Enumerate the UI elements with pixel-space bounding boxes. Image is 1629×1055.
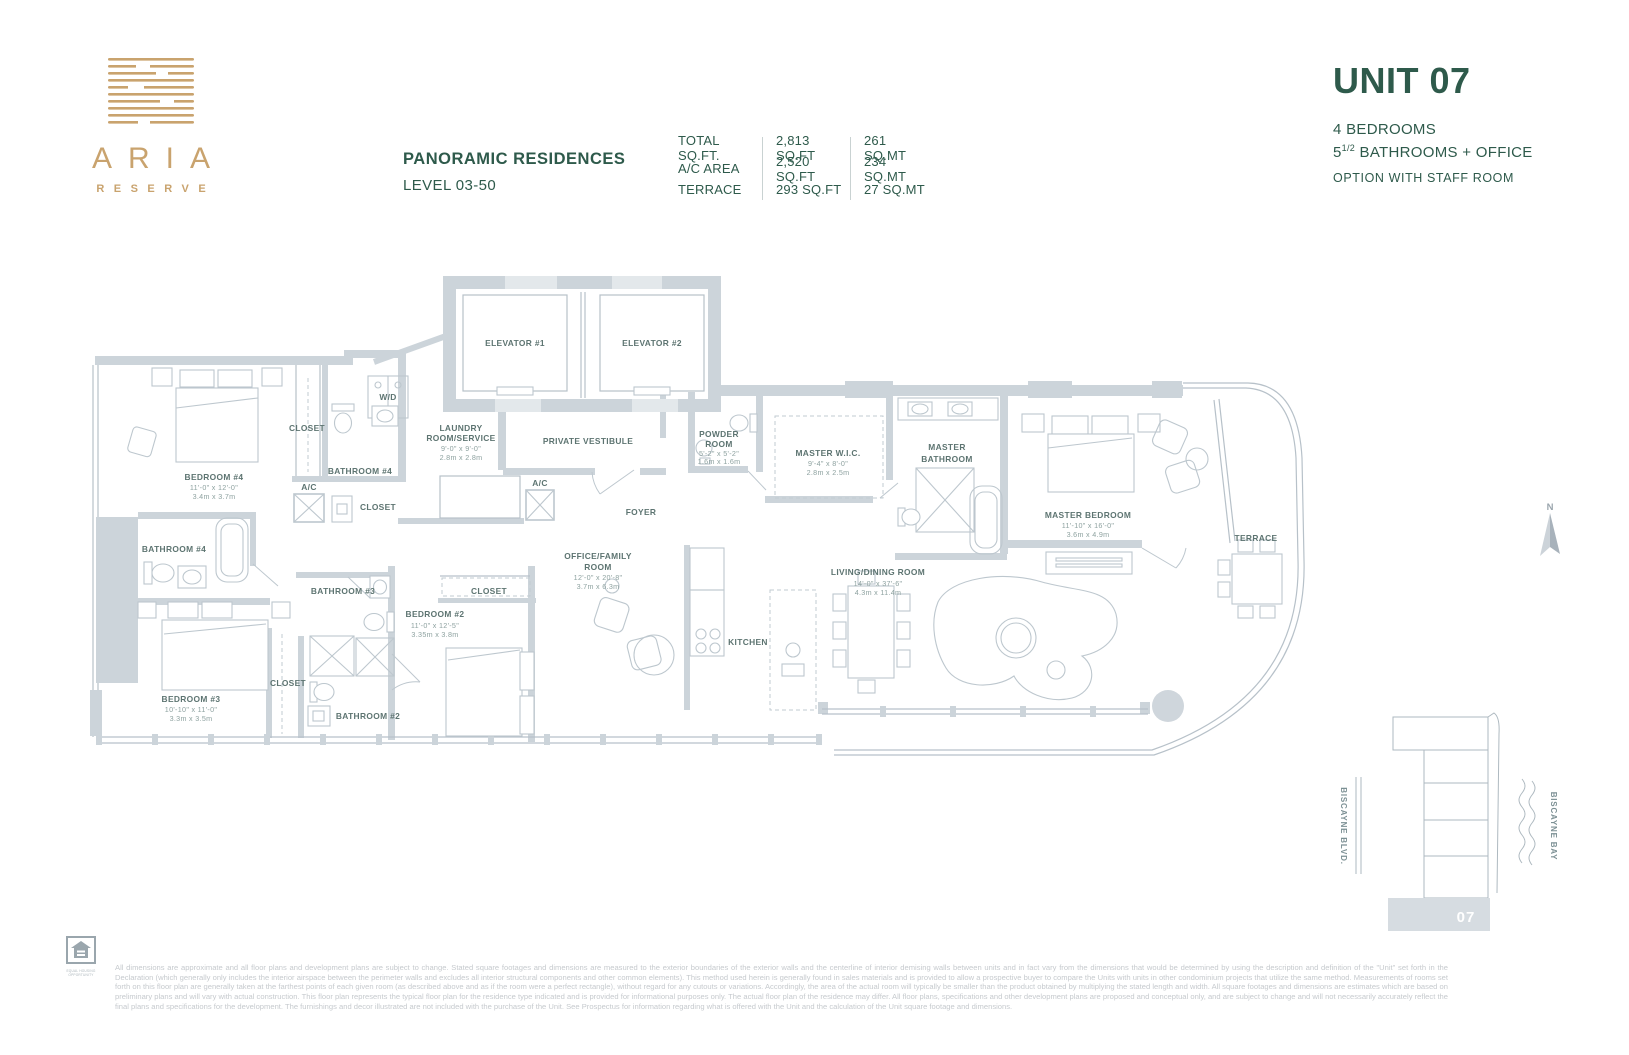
svg-text:BATHROOM: BATHROOM	[921, 454, 973, 464]
room-label-vestibule: PRIVATE VESTIBULE	[543, 436, 633, 446]
svg-text:BEDROOM #2: BEDROOM #2	[406, 609, 465, 619]
svg-text:ROOM: ROOM	[584, 562, 611, 572]
room-label-bathroom4: BATHROOM #4	[142, 544, 206, 554]
equal-housing-icon	[66, 936, 96, 964]
svg-text:11'-0" x 12'-5": 11'-0" x 12'-5"	[411, 621, 459, 630]
svg-text:12'-0" x 20'-8": 12'-0" x 20'-8"	[574, 573, 623, 582]
office-chairs-icon	[593, 579, 674, 675]
elevator-doors	[497, 387, 670, 395]
kitchen-counter-icon	[690, 548, 804, 676]
shower-icon	[310, 636, 394, 676]
toilet-icon	[364, 612, 394, 632]
svg-text:LIVING/DINING ROOM: LIVING/DINING ROOM	[831, 567, 925, 577]
svg-text:4.3m x 11.4m: 4.3m x 11.4m	[855, 588, 902, 597]
bed-icon	[152, 368, 282, 462]
bathtub-icon	[216, 518, 248, 582]
toilet-icon	[898, 508, 920, 526]
room-label-master-bedroom: MASTER BEDROOM 11'-10" x 16'-0" 3.6m x 4…	[1045, 510, 1131, 539]
svg-text:MASTER: MASTER	[928, 442, 965, 452]
sink-icon	[178, 566, 206, 588]
room-label-elevator2: ELEVATOR #2	[622, 338, 682, 348]
bed-icon	[138, 602, 290, 690]
svg-text:3.4m x 3.7m: 3.4m x 3.7m	[193, 492, 236, 501]
ac-closet-icon	[294, 490, 554, 522]
room-label-ac: A/C	[532, 478, 547, 488]
svg-text:3.3m x 3.5m: 3.3m x 3.5m	[170, 714, 213, 723]
svg-text:10'-10" x 11'-0": 10'-10" x 11'-0"	[165, 705, 218, 714]
room-label-bedroom3: BEDROOM #3 10'-10" x 11'-0" 3.3m x 3.5m	[162, 694, 221, 723]
svg-text:MASTER BEDROOM: MASTER BEDROOM	[1045, 510, 1131, 520]
room-label-bathroom3: BATHROOM #3	[311, 586, 375, 596]
svg-text:2.8m x 2.8m: 2.8m x 2.8m	[440, 453, 483, 462]
compass-needle-icon	[1540, 513, 1550, 556]
room-label-living-dining: LIVING/DINING ROOM 14'-0" x 37'-6" 4.3m …	[831, 567, 925, 597]
room-label-bedroom4: BEDROOM #4 11'-0" x 12'-0" 3.4m x 3.7m	[185, 472, 244, 501]
svg-text:POWDER: POWDER	[699, 429, 739, 439]
floor-plan: ELEVATOR #1 ELEVATOR #2 W/D CLOSET BATHR…	[0, 0, 1629, 1055]
shower-icon	[916, 468, 974, 532]
toilet-icon	[144, 562, 174, 584]
compass-needle-icon	[1550, 513, 1560, 554]
svg-text:9'-0" x 9'-0": 9'-0" x 9'-0"	[441, 444, 481, 453]
site-map: 07 BISCAYNE BLVD. BISCAYNE BAY	[1339, 713, 1558, 931]
floorplan-sheet: { "brand": {"name": "ARIA", "tagline": "…	[0, 0, 1629, 1055]
toilet-icon	[332, 404, 354, 433]
svg-text:LAUNDRY: LAUNDRY	[439, 423, 482, 433]
terrace-table-icon	[1218, 540, 1282, 618]
svg-text:OFFICE/FAMILY: OFFICE/FAMILY	[564, 551, 632, 561]
equal-housing-caption: EQUAL HOUSING OPPORTUNITY	[63, 970, 99, 978]
north-compass: N	[1540, 502, 1560, 556]
svg-text:3.35m x 3.8m: 3.35m x 3.8m	[411, 630, 458, 639]
room-label-powder: POWDER ROOM 5'-2" x 5'-2" 1.6m x 1.6m	[698, 429, 741, 466]
room-label-master-bathroom: MASTER BATHROOM	[921, 442, 973, 464]
svg-text:ROOM: ROOM	[705, 439, 732, 449]
svg-text:2.8m x 2.5m: 2.8m x 2.5m	[807, 468, 850, 477]
room-label-closet: CLOSET	[289, 423, 326, 433]
room-label-bathroom2: BATHROOM #2	[336, 711, 400, 721]
bed-icon	[1022, 414, 1160, 492]
room-label-elevator1: ELEVATOR #1	[485, 338, 545, 348]
svg-text:3.7m x 6.3m: 3.7m x 6.3m	[577, 582, 620, 591]
sink-icon	[372, 406, 398, 426]
svg-text:1.6m x 1.6m: 1.6m x 1.6m	[698, 457, 741, 466]
chair-icon	[127, 426, 157, 458]
planter-icon	[1152, 690, 1184, 722]
svg-text:11'-0" x 12'-0": 11'-0" x 12'-0"	[190, 483, 238, 492]
room-label-ac: A/C	[301, 482, 316, 492]
svg-text:3.6m x 4.9m: 3.6m x 4.9m	[1067, 530, 1110, 539]
svg-text:BEDROOM #4: BEDROOM #4	[185, 472, 244, 482]
street-label: BISCAYNE BLVD.	[1339, 787, 1348, 864]
room-label-closet: CLOSET	[270, 678, 307, 688]
bathtub-icon	[970, 486, 1002, 554]
svg-text:11'-10" x 16'-0": 11'-10" x 16'-0"	[1062, 521, 1115, 530]
room-label-bathroom4-service: BATHROOM #4	[328, 466, 392, 476]
linen-closet-icon	[332, 496, 352, 522]
room-label-terrace: TERRACE	[1235, 533, 1278, 543]
room-label-closet: CLOSET	[360, 502, 397, 512]
svg-text:MASTER W.I.C.: MASTER W.I.C.	[795, 448, 860, 458]
svg-text:BEDROOM #3: BEDROOM #3	[162, 694, 221, 704]
room-label-kitchen: KITCHEN	[728, 637, 768, 647]
svg-text:14'-0" x 37'-6": 14'-0" x 37'-6"	[854, 579, 903, 588]
sink-icon	[308, 706, 330, 726]
bed-icon	[446, 648, 534, 736]
north-label: N	[1547, 502, 1554, 513]
room-label-foyer: FOYER	[626, 507, 657, 517]
room-label-wic: MASTER W.I.C. 9'-4" x 8'-0" 2.8m x 2.5m	[795, 448, 860, 477]
toilet-icon	[310, 682, 334, 702]
unit-highlight-number: 07	[1457, 909, 1476, 926]
legal-disclaimer: All dimensions are approximate and all f…	[115, 963, 1448, 1012]
bay-label: BISCAYNE BAY	[1549, 792, 1558, 861]
room-label-bedroom2: BEDROOM #2 11'-0" x 12'-5" 3.35m x 3.8m	[406, 609, 465, 639]
room-label-wd: W/D	[379, 392, 396, 402]
svg-text:ROOM/SERVICE: ROOM/SERVICE	[426, 433, 495, 443]
tv-console-icon	[1046, 552, 1132, 574]
equal-housing-logo: EQUAL HOUSING OPPORTUNITY	[63, 936, 99, 978]
svg-text:9'-4" x 8'-0": 9'-4" x 8'-0"	[808, 459, 848, 468]
vanity-icon	[898, 398, 998, 420]
room-label-office: OFFICE/FAMILY ROOM 12'-0" x 20'-8" 3.7m …	[564, 551, 632, 591]
room-label-laundry: LAUNDRY ROOM/SERVICE 9'-0" x 9'-0" 2.8m …	[426, 423, 495, 462]
sofa-icon	[934, 576, 1117, 699]
diagonal-wall	[374, 336, 446, 362]
room-label-closet: CLOSET	[471, 586, 508, 596]
